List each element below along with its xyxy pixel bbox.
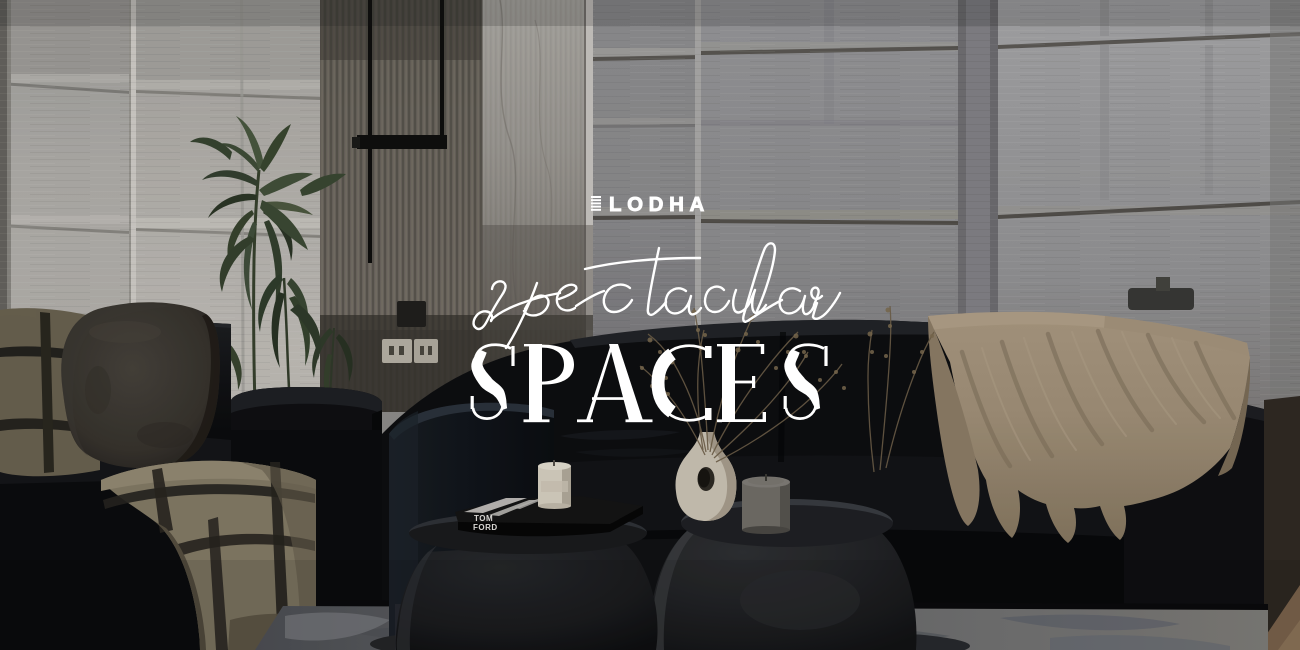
svg-text:LODHA: LODHA bbox=[609, 193, 710, 216]
